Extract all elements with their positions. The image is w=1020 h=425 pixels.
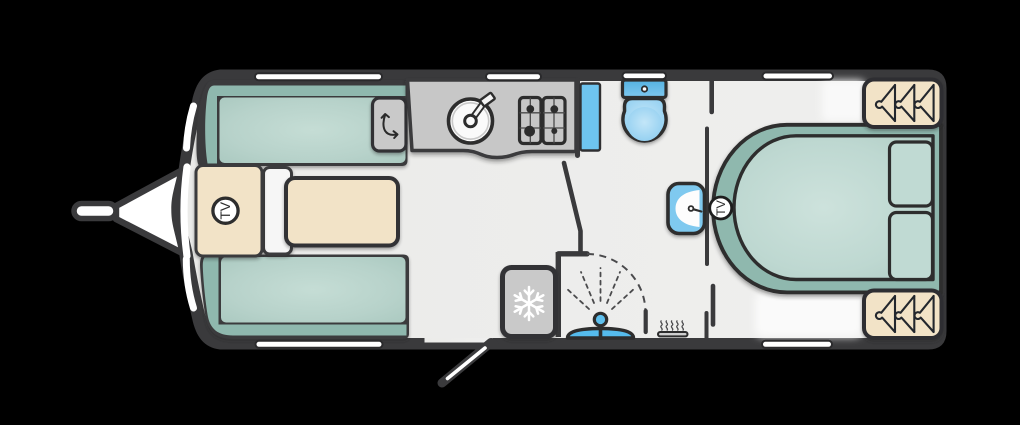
svg-text:TV: TV: [714, 199, 728, 215]
svg-text:TV: TV: [218, 201, 233, 219]
